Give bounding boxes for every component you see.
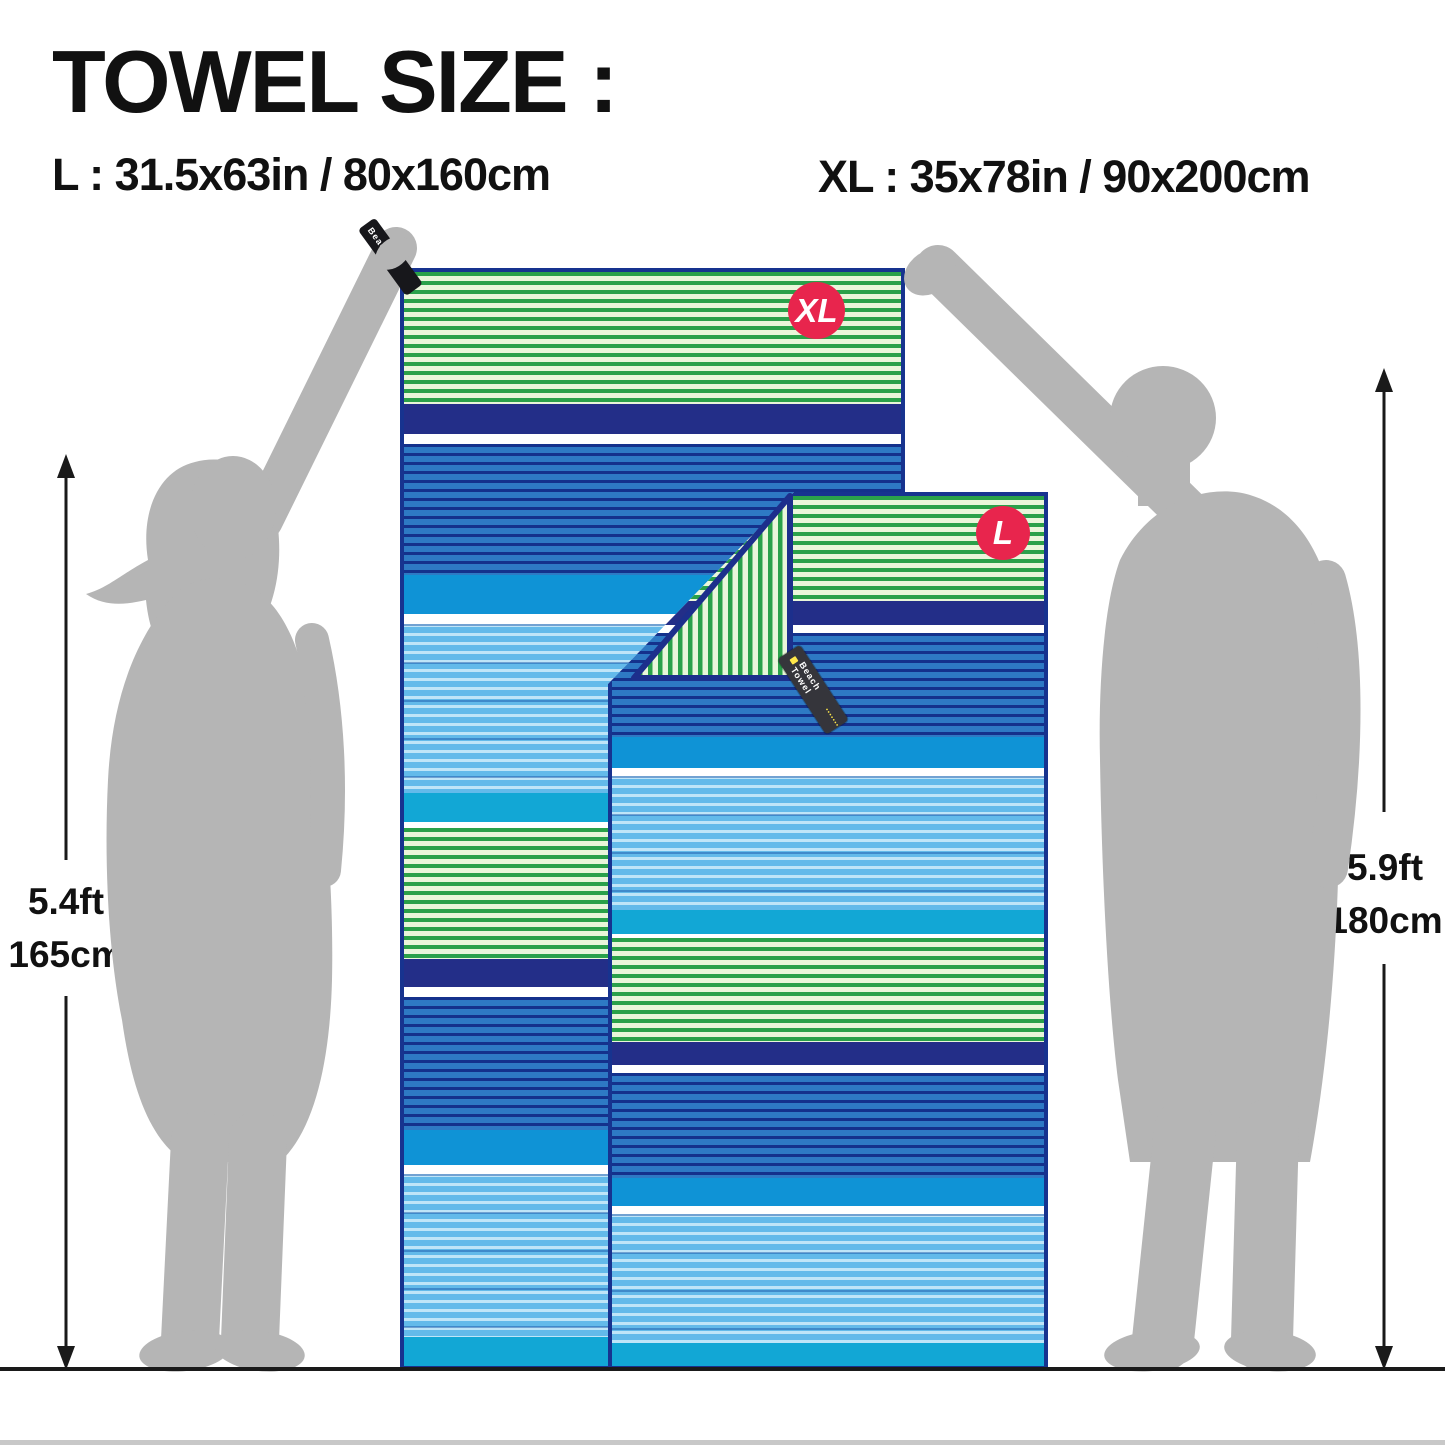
towel-band-sky — [612, 1214, 1044, 1344]
size-chart-canvas: TOWEL SIZE : L : 31.5x63in / 80x160cm XL… — [0, 0, 1445, 1446]
towel-band-azure — [612, 1178, 1044, 1206]
zipper-tag-accent: ••••••• — [823, 708, 840, 729]
towel-band-cyan — [612, 910, 1044, 933]
towel-band-white — [612, 1065, 1044, 1073]
towel-band-cyan — [612, 1343, 1044, 1366]
towel-band-azure — [612, 737, 1044, 768]
towel-band-white — [612, 768, 1044, 776]
zipper-tag-logo-icon — [789, 656, 798, 665]
towel-band-green — [612, 938, 1044, 1042]
floor-line — [0, 1367, 1445, 1371]
towel-band-blue — [612, 1073, 1044, 1178]
towel-band-sky — [612, 776, 1044, 910]
woman-hand — [369, 229, 418, 276]
towel-band-white — [612, 1206, 1044, 1214]
towel-band-navy — [612, 1042, 1044, 1065]
bottom-edge-line — [0, 1440, 1445, 1445]
man-hand — [895, 239, 965, 306]
badge-l: L — [976, 506, 1030, 560]
flap-triangle — [634, 496, 790, 678]
